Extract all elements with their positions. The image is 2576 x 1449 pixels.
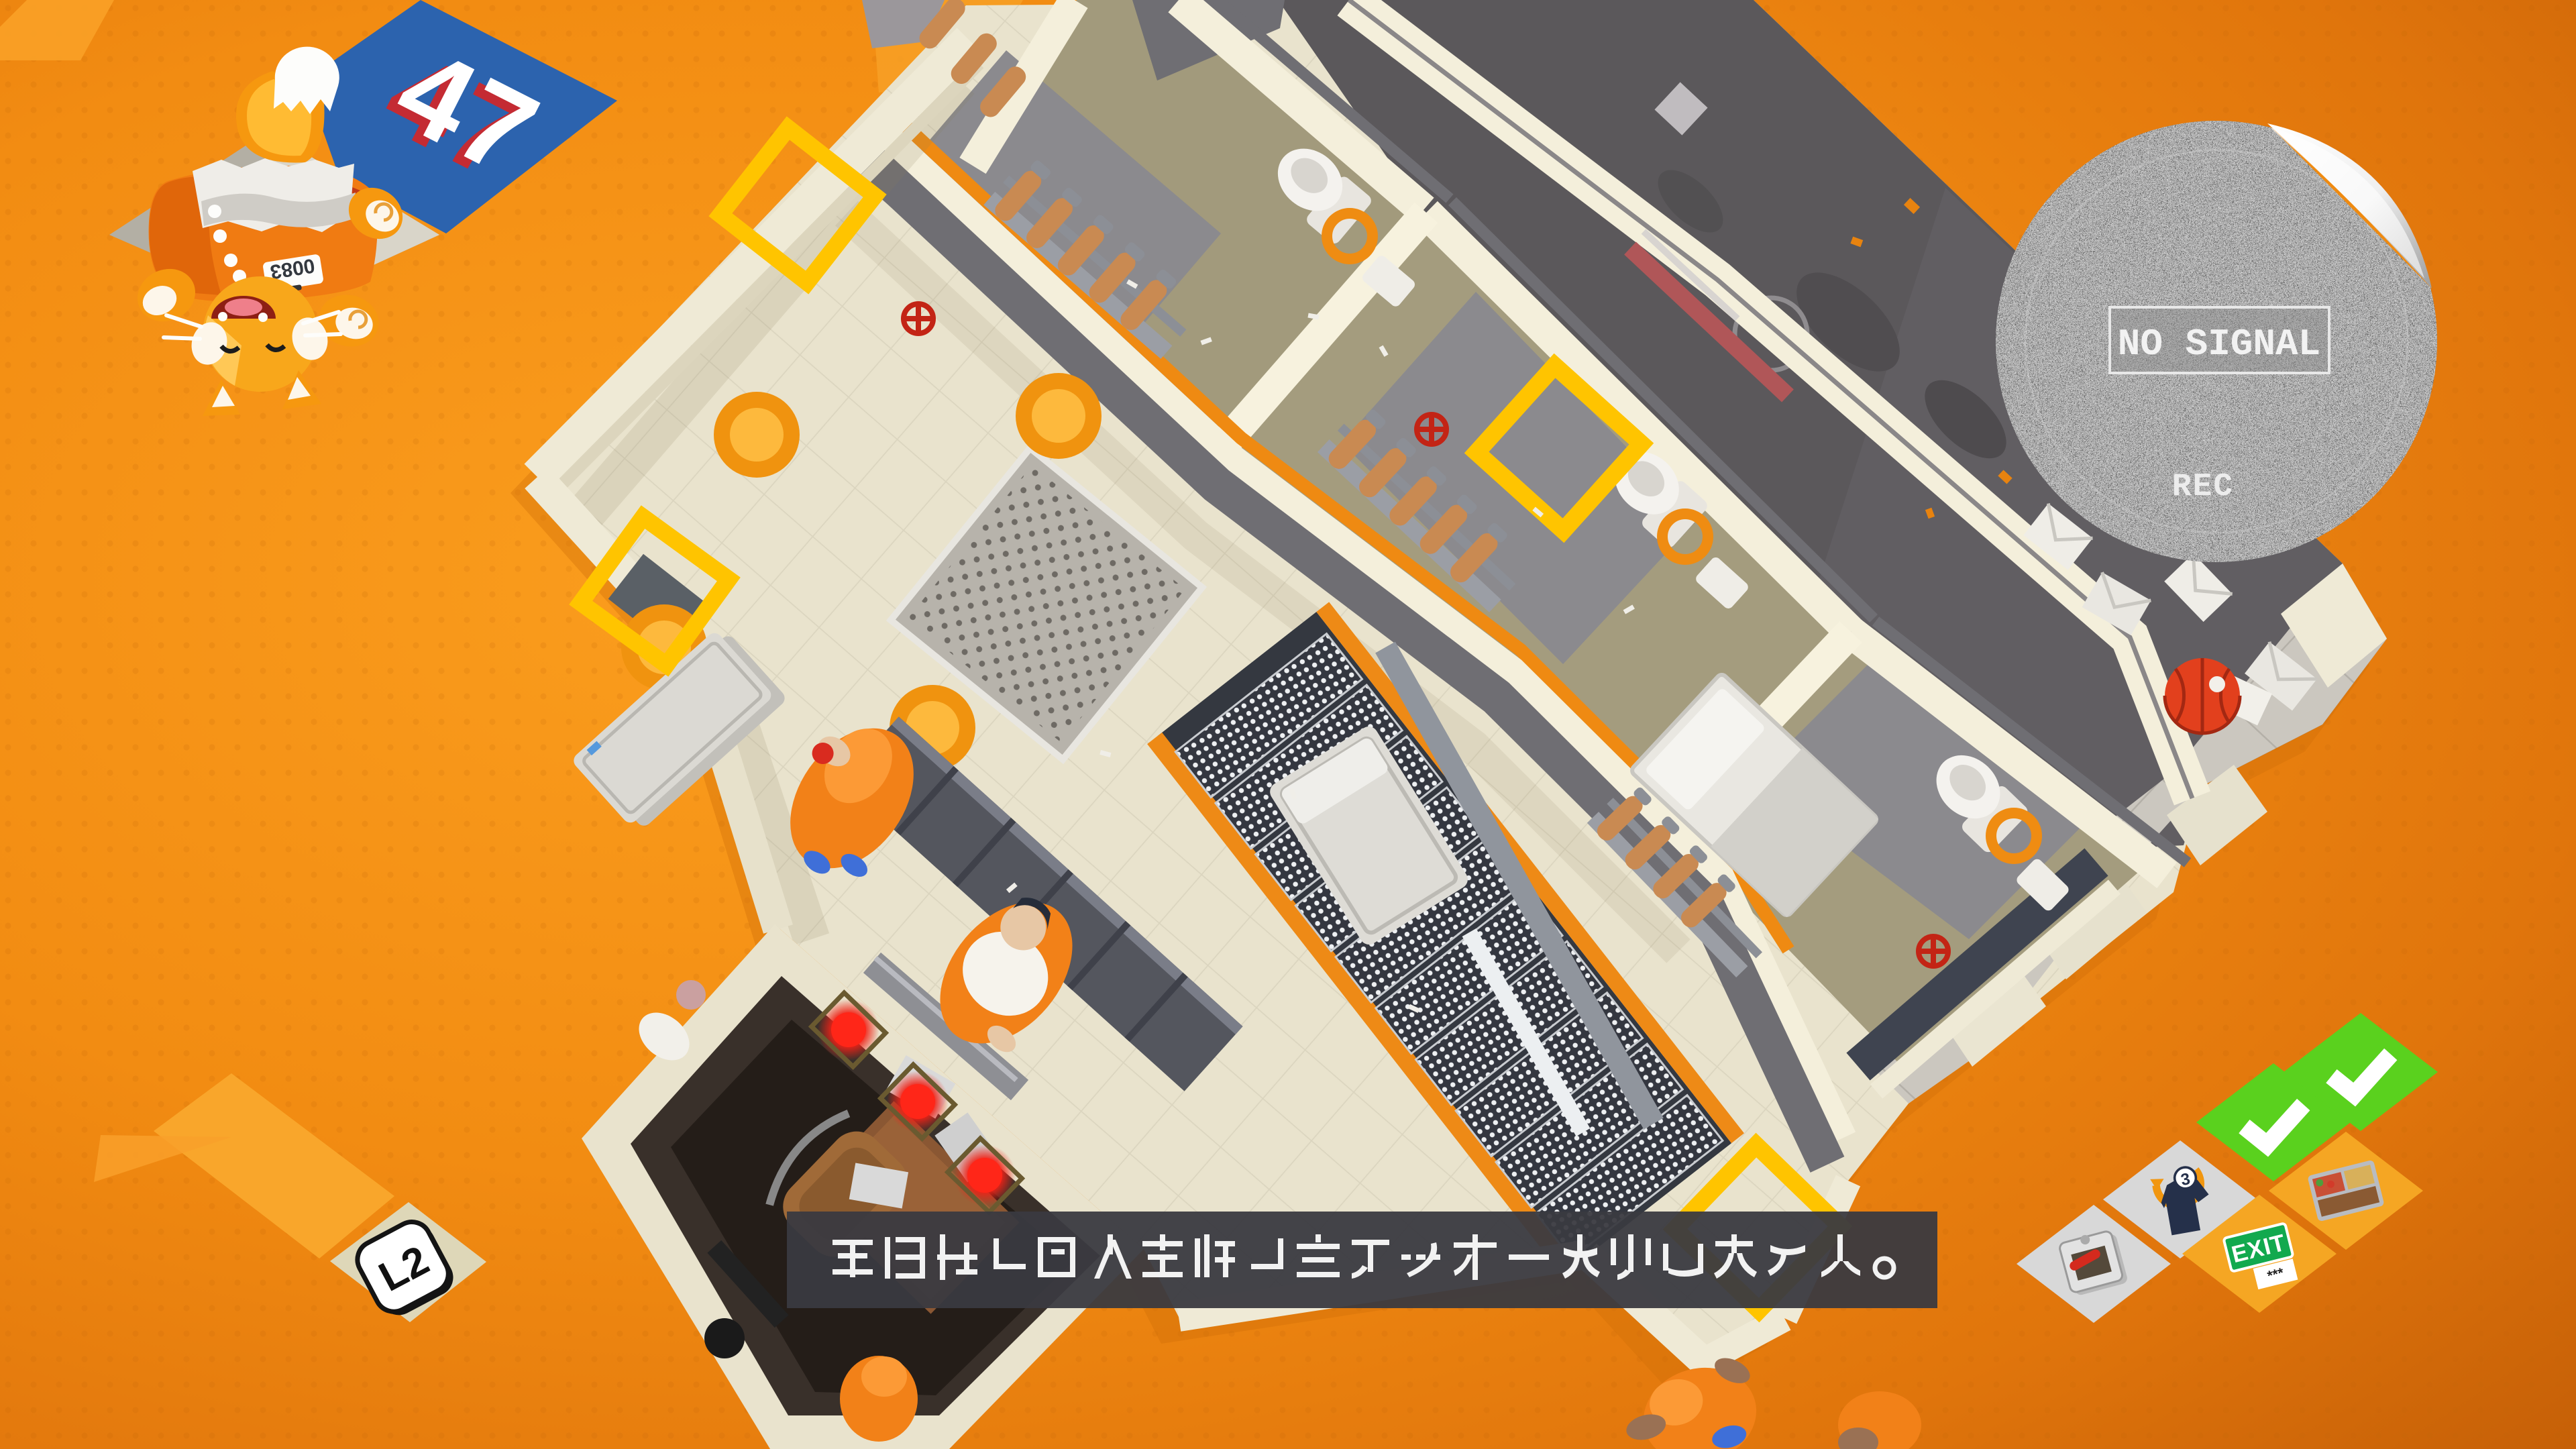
svg-text:REC: REC xyxy=(2172,469,2234,505)
svg-text:NO SIGNAL: NO SIGNAL xyxy=(2118,323,2320,366)
